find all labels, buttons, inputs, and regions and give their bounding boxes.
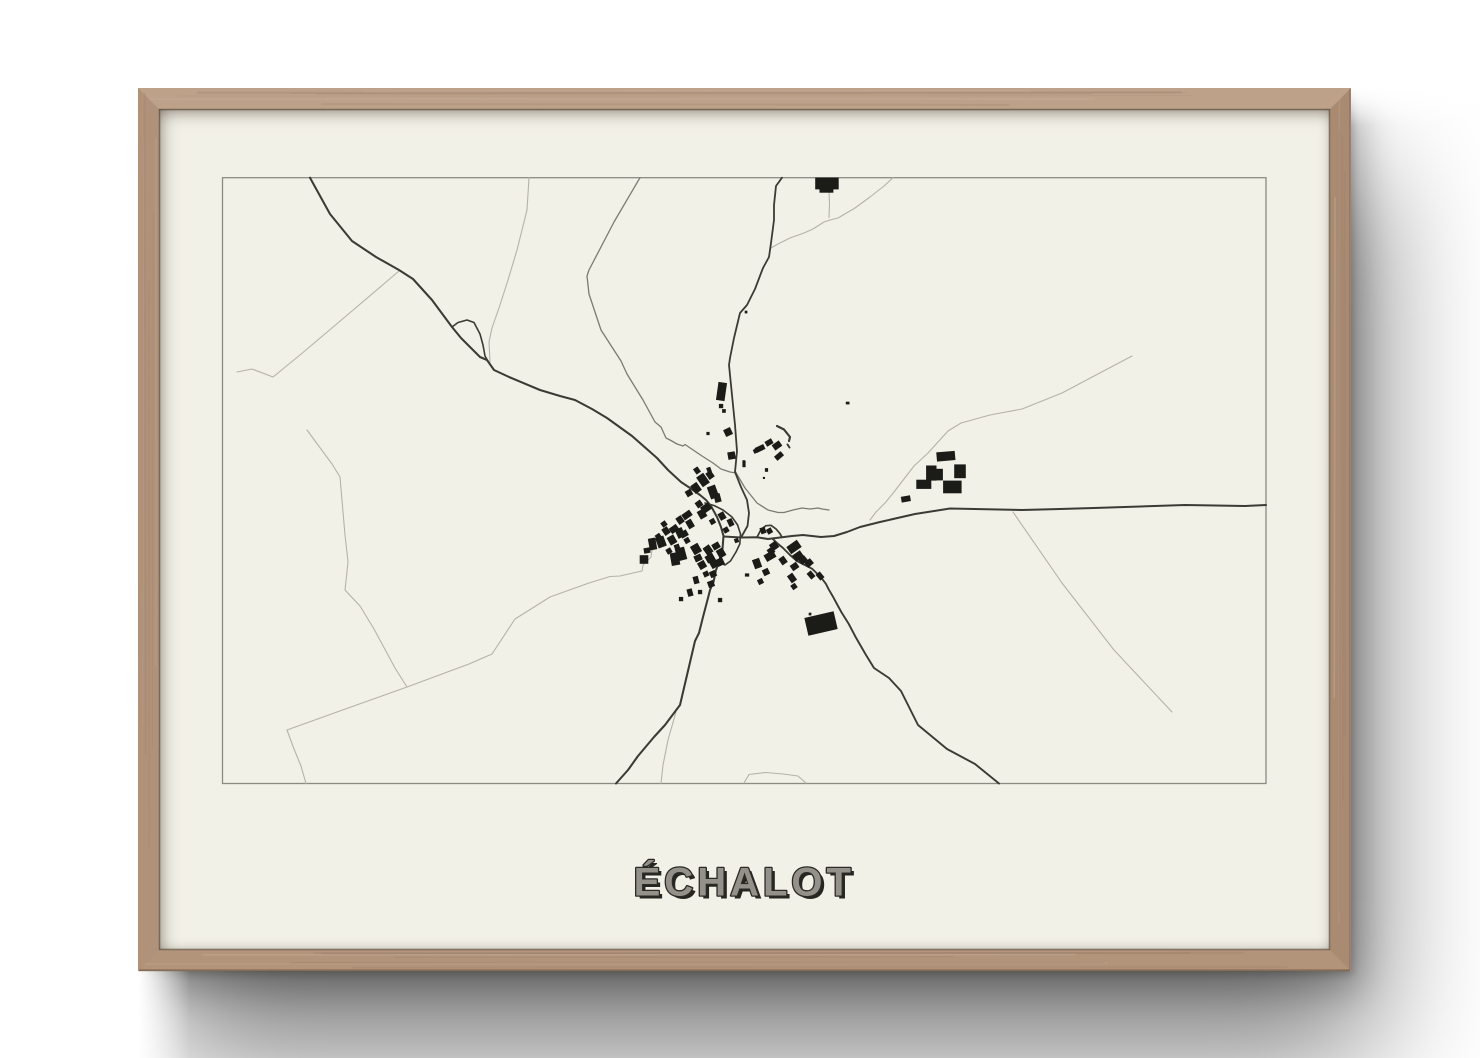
svg-text:ÉCHALOT: ÉCHALOT (634, 859, 855, 904)
